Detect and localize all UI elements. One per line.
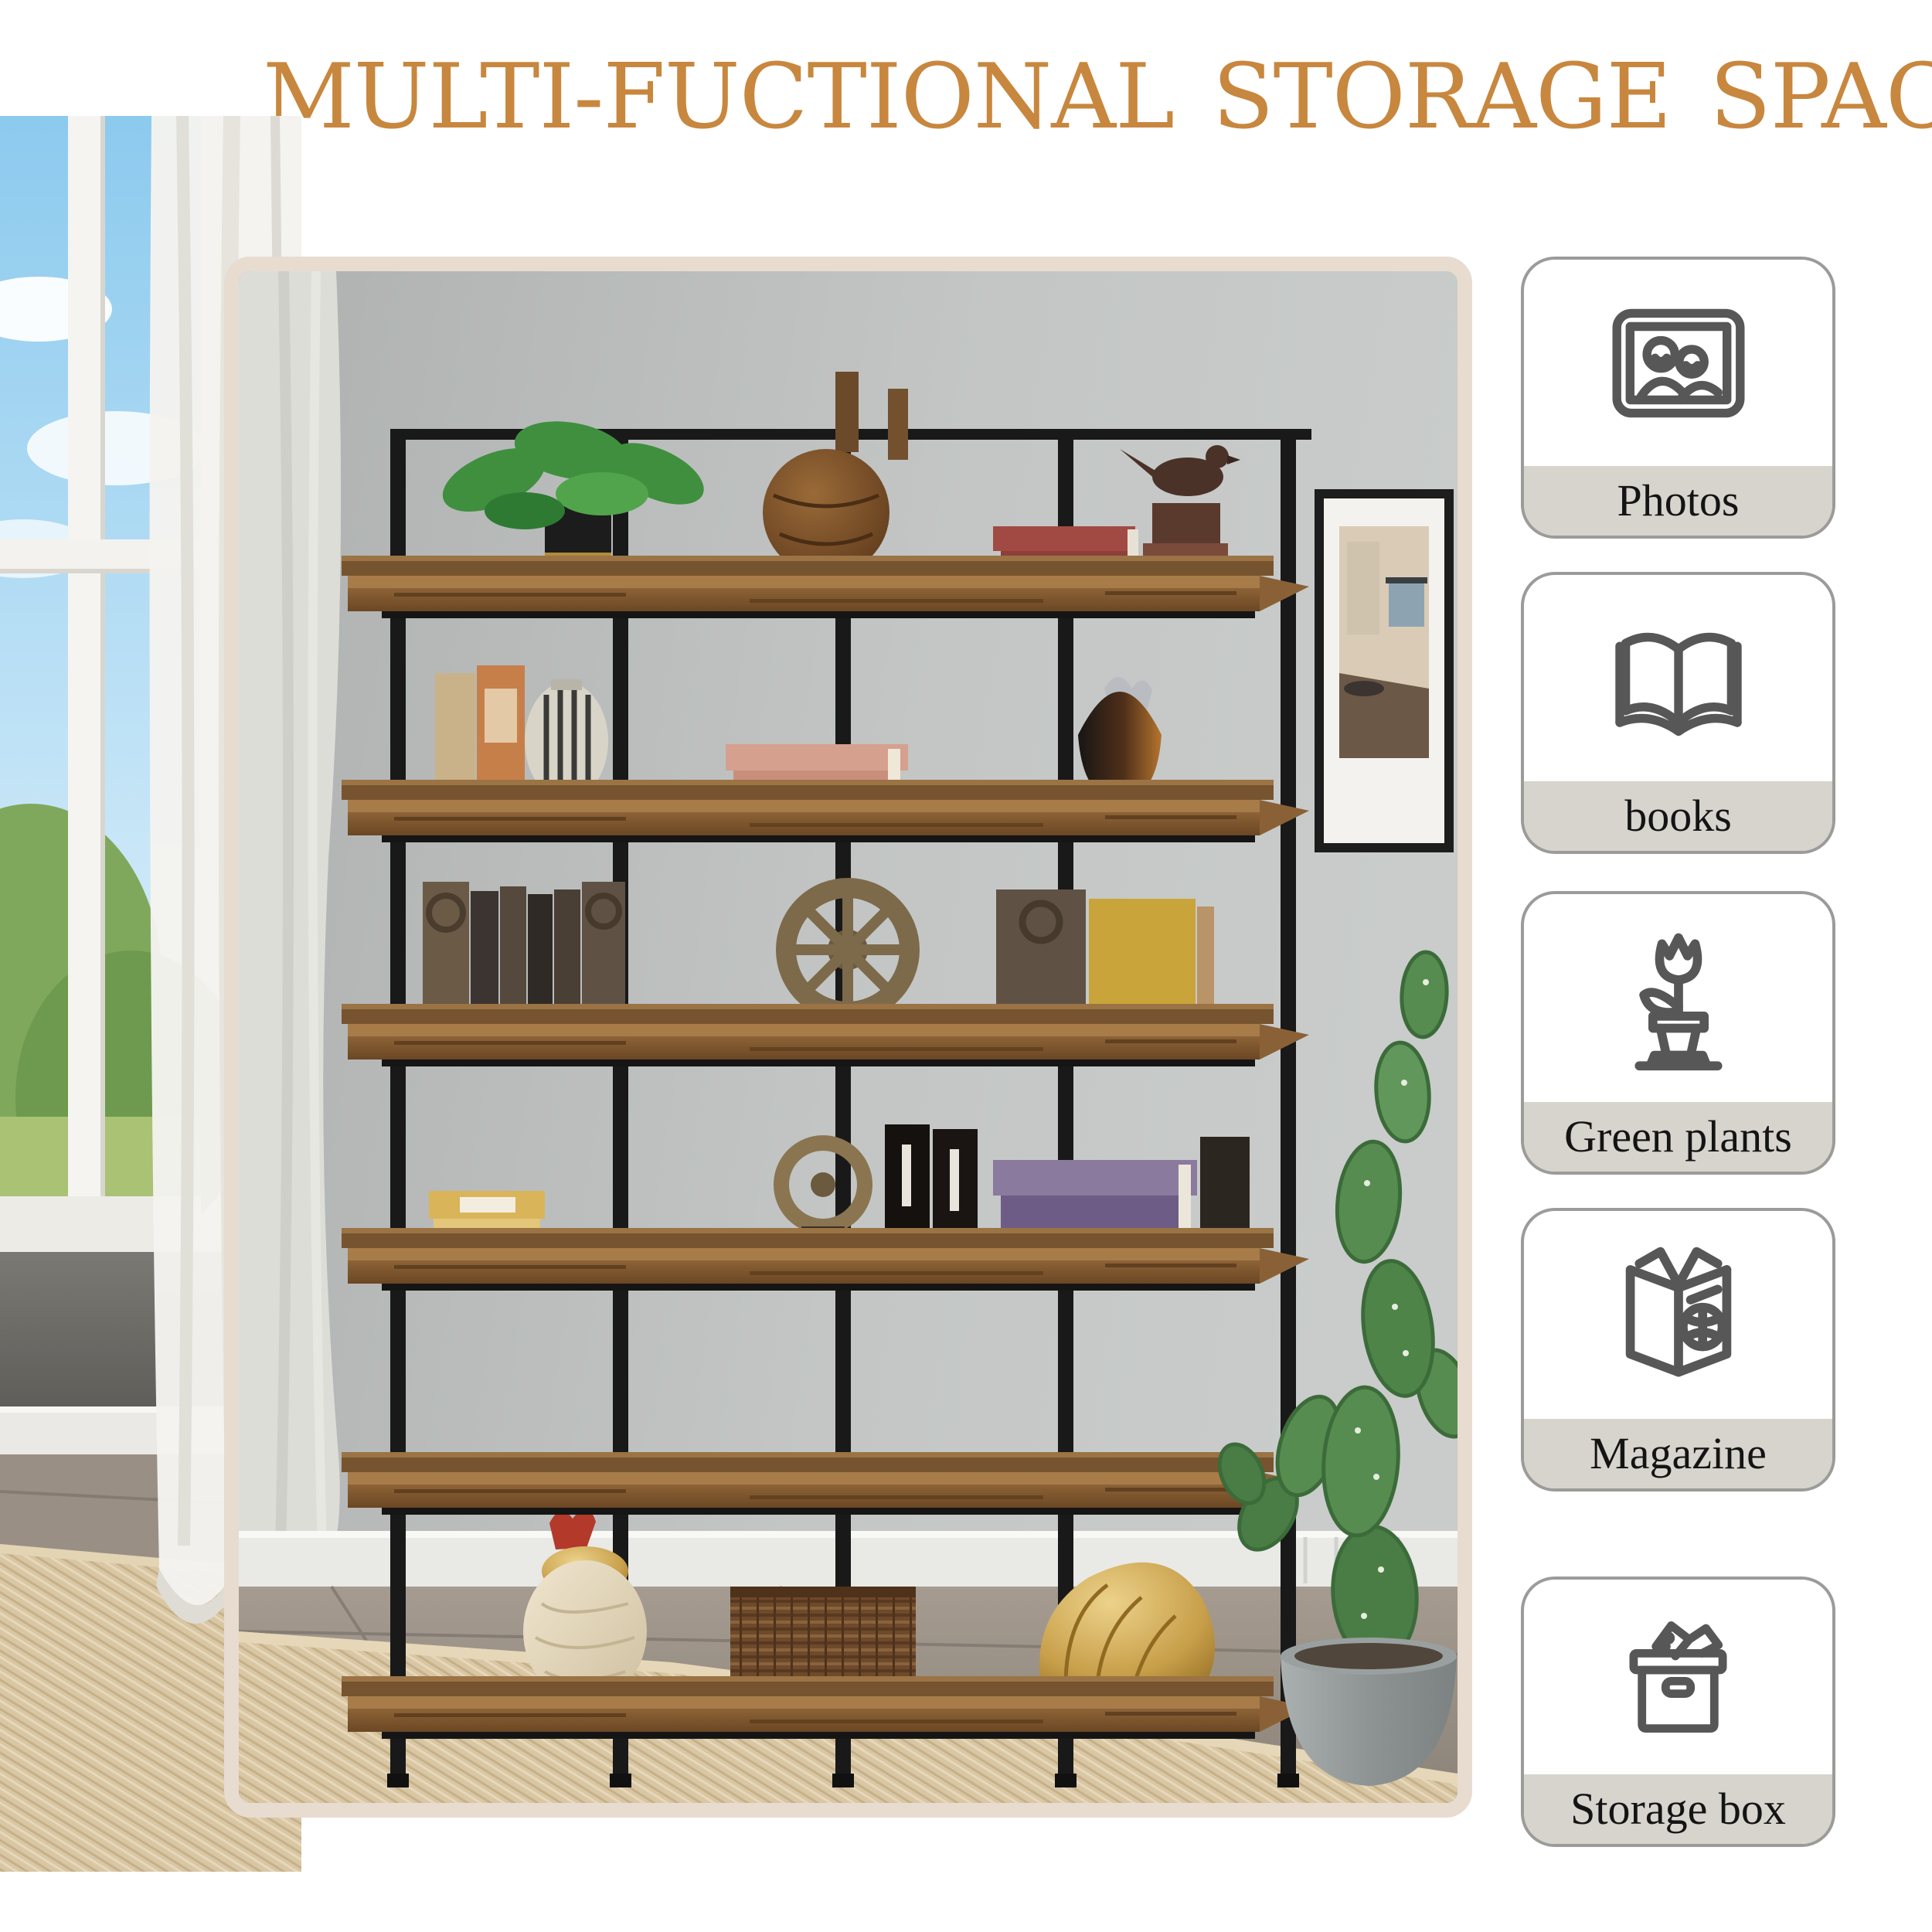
main-product-photo xyxy=(224,257,1472,1818)
badge-books: books xyxy=(1521,572,1835,854)
potted-plant-icon xyxy=(1597,923,1760,1073)
badge-label: Magazine xyxy=(1524,1419,1832,1488)
decor-bookends-gear xyxy=(423,882,1214,1024)
curtain-edge xyxy=(239,271,341,1577)
wall-art-frame xyxy=(1315,489,1454,852)
window-mullion xyxy=(68,116,104,1252)
badge-label: Green plants xyxy=(1524,1102,1832,1172)
badge-label: Photos xyxy=(1524,466,1832,536)
storage-box-icon xyxy=(1599,1607,1757,1747)
photo-frame-icon xyxy=(1590,290,1767,437)
badge-photos: Photos xyxy=(1521,257,1835,539)
magazine-icon xyxy=(1590,1240,1767,1390)
page-title: MULTI-FUCTIONAL STORAGE SPACE xyxy=(263,45,1777,149)
room-scene xyxy=(239,271,1458,1803)
badge-label: Storage box xyxy=(1524,1774,1832,1844)
badge-label: books xyxy=(1524,781,1832,851)
badge-magazine: Magazine xyxy=(1521,1208,1835,1492)
badge-storage-box: Storage box xyxy=(1521,1577,1835,1847)
page-root: MULTI-FUCTIONAL STORAGE SPACE xyxy=(0,0,1932,1932)
open-book-icon xyxy=(1594,605,1764,752)
badge-green-plants: Green plants xyxy=(1521,891,1835,1175)
